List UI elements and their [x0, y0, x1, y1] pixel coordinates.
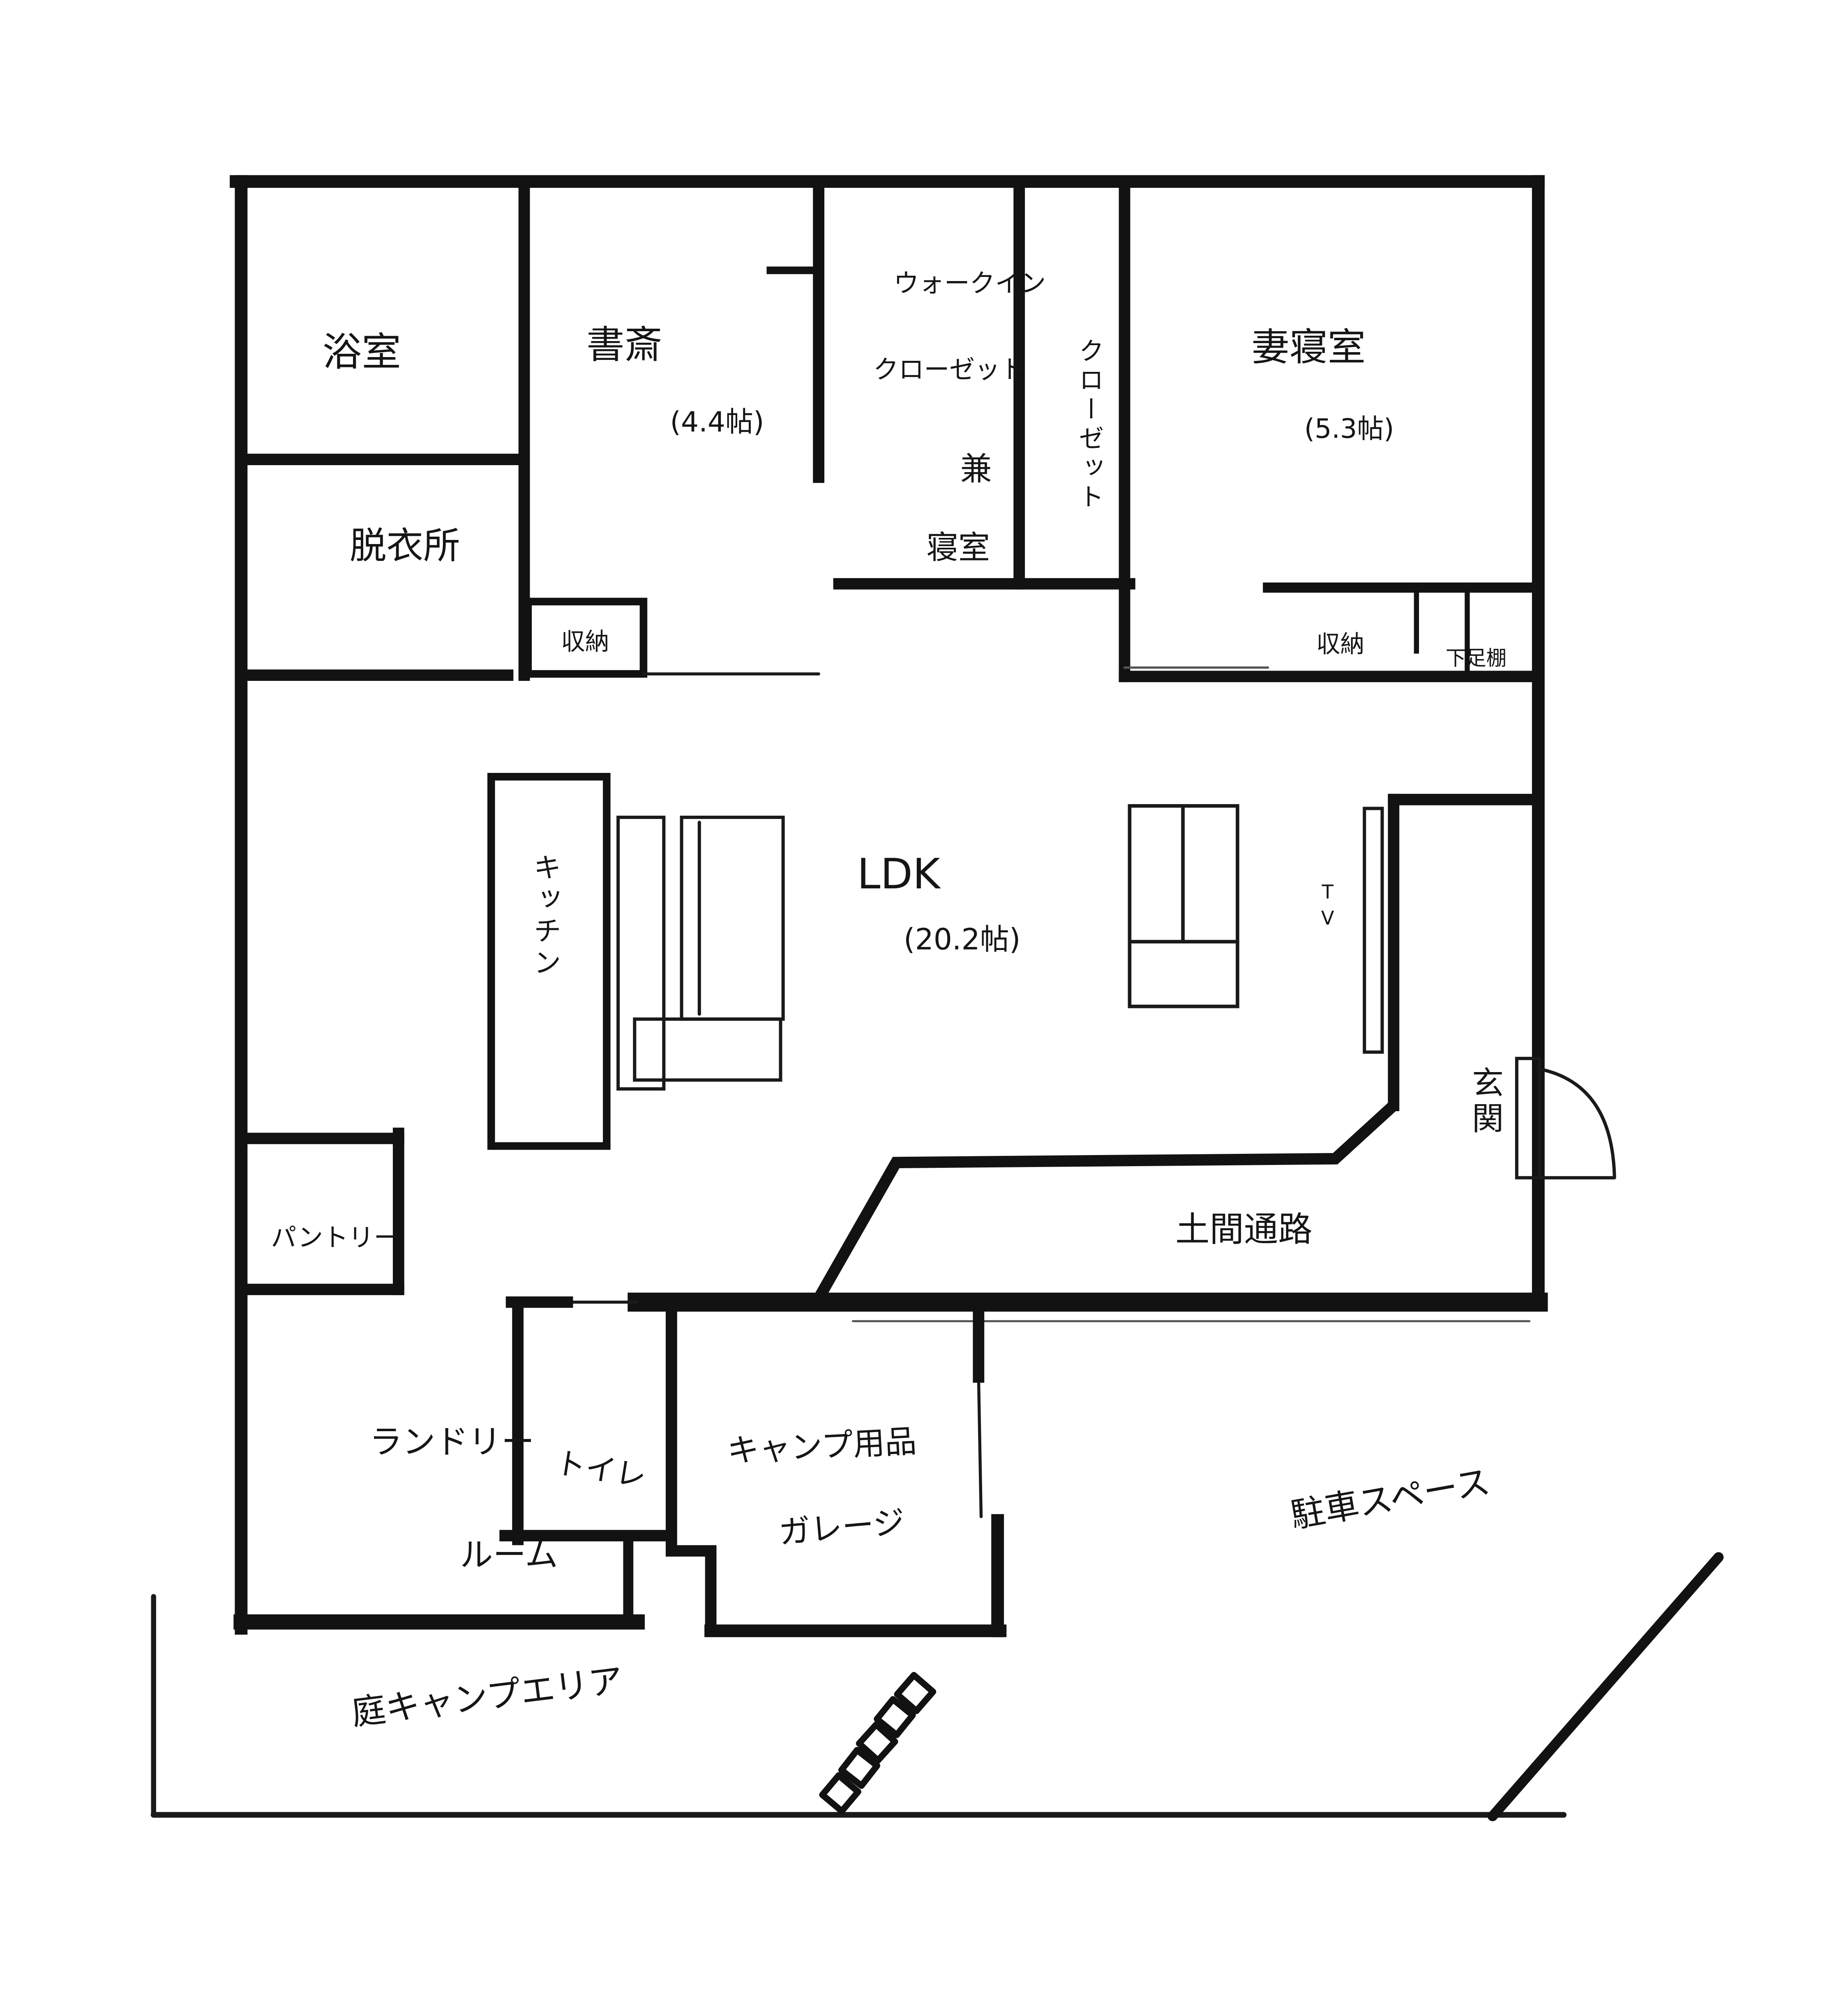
- sofa: [1130, 806, 1238, 1006]
- tv-unit: [1364, 808, 1382, 1052]
- wic-label-line3: 兼: [960, 450, 992, 487]
- study-label: 書斎: [586, 323, 662, 367]
- pantry-label: パントリー: [271, 1223, 399, 1252]
- entrance-label: 玄関: [1467, 1066, 1504, 1137]
- wic-label-line4: 寝室: [927, 529, 990, 566]
- master-bedroom-label: 妻寝室: [1251, 325, 1366, 369]
- garage-label-line1: キャンプ用品: [727, 1423, 918, 1470]
- kitchen-label: キッチン: [528, 853, 561, 980]
- property-line-diagonal: [1493, 1557, 1719, 1816]
- wic-label-line2: クローゼット: [873, 355, 1026, 384]
- wall-garage-step: [671, 1551, 711, 1631]
- interior-walls: [241, 182, 1539, 1631]
- study-size-label: (4.4帖): [670, 406, 764, 438]
- dressing-room-label: 脱衣所: [350, 525, 460, 567]
- dining-table: [618, 817, 783, 1089]
- dining-bench-bottom: [634, 1019, 780, 1080]
- furniture: [491, 777, 1614, 1178]
- bathroom-label: 浴室: [323, 329, 401, 375]
- ldk-floor-edge: [819, 1105, 1393, 1298]
- laundry-label-line2: ルーム: [460, 1535, 558, 1574]
- closet-label: クローゼット: [1074, 338, 1104, 513]
- door-swing-arc: [1543, 1070, 1615, 1176]
- toilet-label: トイレ: [553, 1445, 648, 1494]
- doma-passage-label: 土間通路: [1175, 1210, 1313, 1250]
- garage-label-line2: ガレージ: [777, 1504, 907, 1551]
- storage-study-label: 収納: [561, 627, 609, 655]
- room-labels: 浴室 脱衣所 書斎 (4.4帖) ウォークイン クローゼット 兼 寝室 クローゼ…: [271, 268, 1507, 1733]
- yard-camp-label: 庭キャンプエリア: [349, 1660, 625, 1733]
- garage-door-line: [978, 1377, 981, 1517]
- stepping-stones: [822, 1675, 933, 1811]
- floor-plan-svg: 浴室 脱衣所 書斎 (4.4帖) ウォークイン クローゼット 兼 寝室 クローゼ…: [0, 0, 1848, 2004]
- shoe-shelf-label: 下足棚: [1446, 646, 1507, 670]
- entrance-door: [1517, 1058, 1615, 1178]
- laundry-label-line1: ランドリー: [369, 1422, 534, 1461]
- outer-walls: [236, 182, 1538, 1628]
- site-boundary: [154, 1557, 1719, 1816]
- storage-master-label: 収納: [1316, 630, 1364, 658]
- wic-label-line1: ウォークイン: [893, 268, 1046, 298]
- parking-label: 駐車スペース: [1287, 1462, 1493, 1536]
- ldk-size-label: (20.2帖): [904, 922, 1021, 956]
- dining-bench-left: [618, 817, 664, 1089]
- dining-table-top: [682, 817, 783, 1019]
- scanned-floor-plan-page: 浴室 脱衣所 書斎 (4.4帖) ウォークイン クローゼット 兼 寝室 クローゼ…: [0, 0, 1848, 2004]
- ldk-label: LDK: [857, 850, 941, 899]
- master-bedroom-size-label: (5.3帖): [1304, 414, 1394, 445]
- tv-label: TV: [1317, 881, 1339, 933]
